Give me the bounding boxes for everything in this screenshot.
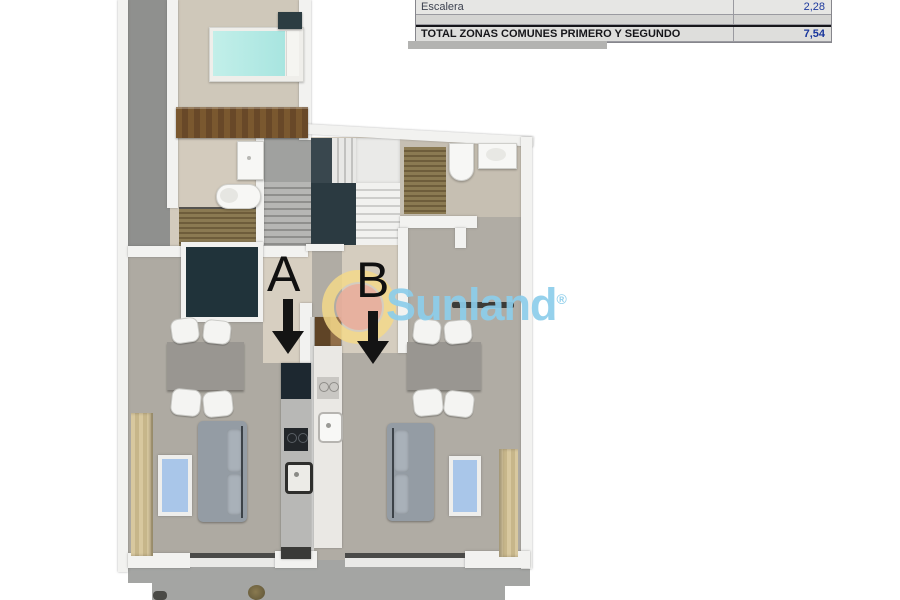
table-row: Escalera 2,28 (416, 0, 831, 15)
bathroom-a-sink-drain (247, 156, 251, 160)
bathroom-b-sink-basin (486, 148, 506, 161)
table-row-blank (416, 15, 831, 25)
outer-wall-left (118, 0, 128, 572)
row-label (416, 15, 734, 24)
dining-table-unit-b (407, 342, 481, 390)
table-edge-bar (408, 41, 607, 49)
window-unit-b-glass (453, 460, 477, 512)
kitchen-a-faucet (294, 472, 299, 477)
unit-b-label: B (356, 255, 389, 305)
stairs-winder-steps (332, 138, 356, 183)
registered-mark: ® (557, 291, 566, 307)
unit-a-arrow-icon (272, 331, 304, 354)
total-value: 7,54 (734, 27, 831, 41)
kitchen-a-sink (285, 462, 313, 494)
sofa-a-cushion (227, 474, 242, 515)
row-label: Escalera (416, 0, 734, 14)
stairs-lower-flight (264, 138, 311, 182)
bathroom-a-toilet-bowl (220, 188, 238, 203)
unit-a-arrow-shaft (283, 299, 293, 332)
cabinet-unit-b (499, 449, 518, 557)
bathroom-b-shower-mat (404, 147, 446, 214)
kitchen-b-sink (318, 412, 343, 443)
stairs-dark-block (311, 138, 332, 183)
bedroom-wall-left (167, 0, 178, 208)
sofa-b-cushion (394, 430, 409, 472)
terrace-wall-right (465, 551, 530, 568)
unit-a-label: A (267, 249, 300, 299)
table-row-total: TOTAL ZONAS COMUNES PRIMERO Y SEGUNDO 7,… (416, 25, 831, 42)
bathroom-b-wall-bottom (400, 216, 477, 228)
kitchen-a-burner (287, 433, 297, 443)
chair (202, 390, 235, 419)
bathroom-b-toilet (449, 143, 474, 181)
sofa-a-seam (241, 426, 243, 518)
entry-corridor-floor (128, 0, 170, 252)
unit-b-arrow-shaft (368, 311, 378, 342)
sofa-b-cushion (394, 474, 409, 514)
bathroom-a-sink (237, 141, 264, 180)
stairs-gray-treads (264, 182, 311, 247)
chair (412, 388, 445, 418)
window-unit-a-glass (162, 459, 188, 512)
chair (170, 388, 203, 418)
plant (153, 591, 167, 600)
row-value: 2,28 (734, 0, 831, 14)
stairs-white-panel (356, 138, 400, 183)
chair (169, 316, 200, 345)
kitchen-a-base-dark (281, 547, 311, 559)
watermark-brand: Sunland (386, 279, 557, 330)
terrace-door-a-sill (190, 558, 275, 567)
plant (248, 585, 265, 600)
tv-panel-unit-a (186, 247, 258, 317)
dining-table-unit-a (167, 342, 244, 390)
chair (202, 319, 232, 346)
wardrobe (176, 107, 308, 138)
kitchen-b-burner (329, 382, 339, 392)
bed-pillow (286, 31, 299, 76)
outer-wall-right (521, 137, 532, 569)
boundary-notch-right (505, 586, 565, 600)
kitchen-b-burner (319, 382, 329, 392)
bed-mattress (213, 31, 285, 76)
stairs-white-treads (356, 183, 400, 245)
headboard-cube (278, 12, 302, 29)
stairs-railing (306, 244, 344, 251)
areas-summary-table: Escalera 2,28 TOTAL ZONAS COMUNES PRIMER… (415, 0, 832, 43)
stairs-landing (311, 183, 356, 245)
kitchen-b-faucet (326, 423, 331, 428)
boundary-notch-left (100, 583, 152, 600)
sofa-b-seam (392, 428, 394, 518)
bathroom-b-wall-stub (455, 228, 466, 248)
watermark-brand-text: Sunland® (386, 282, 566, 327)
sofa-a-cushion (227, 429, 242, 472)
total-label: TOTAL ZONAS COMUNES PRIMERO Y SEGUNDO (416, 27, 734, 41)
row-value (734, 15, 831, 24)
chair (443, 389, 476, 418)
kitchen-a-burner (298, 433, 308, 443)
cabinet-unit-a (131, 413, 153, 556)
unit-b-arrow-icon (357, 341, 389, 364)
floor-plan-page: Sunland® A B Escalera 2,28 TOTAL ZONAS C… (0, 0, 900, 600)
kitchen-a-fridge (281, 363, 311, 399)
terrace-door-b-sill (345, 558, 465, 567)
